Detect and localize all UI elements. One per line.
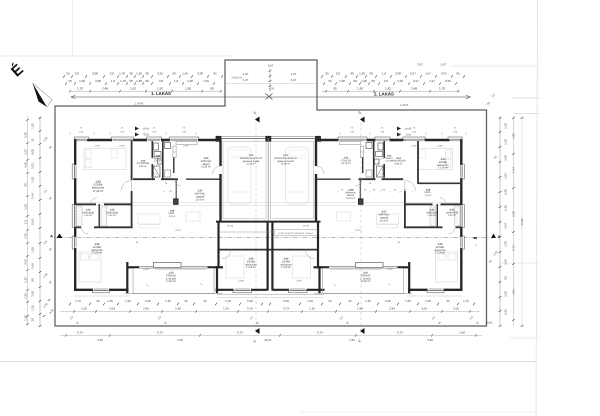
svg-text:2,39: 2,39 [504,123,508,129]
svg-text:1,97: 1,97 [440,63,446,67]
svg-text:4,25: 4,25 [269,88,275,91]
svg-text:17,29 m²: 17,29 m² [93,190,104,193]
svg-text:2,0: 2,0 [75,72,80,76]
svg-text:4,2 m²: 4,2 m² [169,215,176,218]
svg-text:1,9: 1,9 [111,79,116,83]
svg-text:17,29 m²: 17,29 m² [435,252,445,255]
svg-text:p=90: p=90 [120,145,126,148]
svg-text:30: 30 [184,299,188,303]
svg-text:FÜRDŐ: FÜRDŐ [154,157,162,160]
svg-text:5,73: 5,73 [397,331,403,335]
svg-text:1,97: 1,97 [243,78,249,82]
svg-text:4,60: 4,60 [504,155,508,161]
svg-text:1,98: 1,98 [79,79,85,83]
svg-text:1,50: 1,50 [504,139,508,145]
svg-text:4,43: 4,43 [24,259,28,265]
svg-text:2,30: 2,30 [24,233,28,239]
svg-text:3,0: 3,0 [159,79,164,83]
svg-text:1,98: 1,98 [397,79,403,83]
svg-text:1,90: 1,90 [357,86,363,90]
svg-text:2. LAKÁS: 2. LAKÁS [374,91,394,96]
svg-text:95: 95 [213,72,217,76]
svg-text:1.08: 1.08 [170,210,175,213]
svg-text:17,29 m²: 17,29 m² [92,252,102,255]
svg-text:1,82: 1,82 [157,86,163,90]
svg-text:1,20: 1,20 [136,79,142,83]
svg-text:13,75 m²: 13,75 m² [341,162,351,165]
svg-text:p=40: p=40 [388,268,394,271]
svg-text:1,50: 1,50 [504,189,508,195]
svg-text:1,98: 1,98 [175,307,181,311]
svg-text:2,97: 2,97 [417,63,423,67]
svg-text:2,96: 2,96 [143,307,149,311]
svg-text:1,03: 1,03 [24,149,28,155]
svg-text:KÖZL.: KÖZL. [169,212,176,215]
svg-text:1,70: 1,70 [77,86,83,90]
svg-text:1,20: 1,20 [359,72,365,76]
svg-text:2,97: 2,97 [243,72,249,76]
svg-text:1,97: 1,97 [429,79,435,83]
svg-text:20 02: 20 02 [175,229,181,232]
svg-text:2,48: 2,48 [102,86,108,90]
svg-text:FÜRDŐ: FÜRDŐ [385,157,393,160]
svg-text:1,92 m²: 1,92 m² [448,214,456,217]
svg-text:5,44: 5,44 [31,193,35,199]
svg-text:1,70: 1,70 [463,299,469,303]
svg-text:am 90: am 90 [303,225,310,228]
svg-text:1,98: 1,98 [339,79,345,83]
svg-text:1,70: 1,70 [439,86,445,90]
svg-text:1,90: 1,90 [185,86,191,90]
svg-text:1,78: 1,78 [119,72,125,76]
svg-text:1,35: 1,35 [107,299,113,303]
svg-text:2,97: 2,97 [291,78,297,82]
svg-text:2,96: 2,96 [145,299,151,303]
svg-text:2.08: 2.08 [426,189,431,192]
svg-text:1. LAKÁS: 1. LAKÁS [151,91,171,96]
svg-text:KÖZLEKEDŐ: KÖZLEKEDŐ [391,160,405,163]
svg-text:4,2 m²: 4,2 m² [425,194,432,197]
svg-text:11,28 m²: 11,28 m² [246,266,256,269]
svg-text:1,50: 1,50 [125,299,131,303]
svg-text:p=90: p=90 [412,145,418,148]
svg-text:1,45: 1,45 [203,79,209,83]
svg-text:4,70 m²: 4,70 m² [385,160,393,163]
svg-text:3,28: 3,28 [97,338,103,342]
svg-text:1,4045: 1,4045 [400,103,409,107]
svg-text:2,95: 2,95 [445,79,451,83]
svg-text:1,92 m²: 1,92 m² [108,214,116,217]
svg-text:4,60: 4,60 [24,162,28,168]
svg-text:90: 90 [504,276,508,280]
svg-text:13,61: 13,61 [31,218,35,226]
svg-text:2,97: 2,97 [441,72,447,76]
svg-text:56: 56 [68,79,72,83]
svg-text:25: 25 [31,138,35,142]
svg-text:5,73: 5,73 [237,331,243,335]
svg-text:1,98: 1,98 [357,307,363,311]
svg-text:24,41: 24,41 [486,320,493,324]
svg-text:6,20 m²: 6,20 m² [395,162,403,165]
svg-text:90: 90 [328,299,332,303]
svg-text:2,39: 2,39 [24,132,28,138]
svg-text:28,41: 28,41 [264,338,272,342]
svg-text:1,50: 1,50 [405,299,411,303]
svg-text:1,50: 1,50 [24,204,28,210]
svg-text:p=90: p=90 [95,145,101,148]
svg-text:5,73: 5,73 [157,331,163,335]
svg-text:2,0: 2,0 [110,72,115,76]
svg-text:KÖZL.: KÖZL. [425,191,432,194]
svg-text:30: 30 [446,299,450,303]
svg-text:1,48: 1,48 [225,299,231,303]
svg-text:2,96: 2,96 [24,293,28,299]
svg-text:2,30: 2,30 [504,205,508,211]
svg-text:1,48: 1,48 [307,299,313,303]
svg-text:90: 90 [24,183,28,187]
svg-text:1,35: 1,35 [165,299,171,303]
svg-text:1,82: 1,82 [385,86,391,90]
svg-text:1,97: 1,97 [291,72,297,76]
svg-text:24,0: 24,0 [268,64,274,68]
svg-text:2,95: 2,95 [157,72,163,76]
svg-text:2,97: 2,97 [413,79,419,83]
svg-text:4,70 m²: 4,70 m² [154,160,162,163]
svg-text:20 02: 20 02 [355,229,361,232]
svg-text:2,08: 2,08 [453,307,459,311]
svg-text:1,50: 1,50 [31,247,35,253]
svg-text:3,46: 3,46 [504,259,508,265]
svg-text:13,75 m²: 13,75 m² [346,197,356,200]
svg-text:90: 90 [369,72,373,76]
svg-text:1,50: 1,50 [349,338,355,342]
svg-text:±0,00: ±0,00 [405,128,412,131]
svg-text:5,98: 5,98 [283,299,289,303]
svg-text:1,9: 1,9 [24,220,28,224]
svg-text:B²: B² [359,340,362,343]
svg-text:2,0: 2,0 [336,72,341,76]
svg-text:15,50 m²: 15,50 m² [246,163,256,166]
svg-text:90: 90 [203,299,207,303]
svg-text:2,08: 2,08 [81,307,87,311]
svg-text:±0,00: ±0,00 [143,128,150,131]
svg-text:95: 95 [456,72,460,76]
svg-text:2,96: 2,96 [389,307,395,311]
svg-text:-0,02: -0,02 [405,134,411,137]
svg-text:90: 90 [31,278,35,282]
svg-text:p=90: p=90 [438,145,444,148]
svg-text:12,50 m²: 12,50 m² [361,280,371,283]
svg-text:5,98: 5,98 [247,299,253,303]
svg-text:3,08: 3,08 [421,307,427,311]
svg-text:2,96: 2,96 [504,309,508,315]
svg-text:4,43: 4,43 [504,223,508,229]
svg-text:90: 90 [129,79,133,83]
svg-text:95: 95 [333,86,337,90]
svg-text:p=90: p=90 [297,280,303,283]
svg-text:2,98: 2,98 [197,72,203,76]
svg-text:5,70: 5,70 [77,331,83,335]
svg-text:1,03: 1,03 [31,163,35,169]
svg-text:1,4045: 1,4045 [135,101,144,105]
svg-text:1,50: 1,50 [31,177,35,183]
svg-text:30: 30 [348,299,352,303]
svg-text:HOMLOK: HOMLOK [232,77,243,80]
svg-text:-0,02: -0,02 [143,134,149,137]
svg-text:95: 95 [210,86,214,90]
svg-text:12,50 m²: 12,50 m² [166,280,176,283]
svg-text:1,30: 1,30 [223,307,229,311]
svg-text:5,70: 5,70 [317,331,323,335]
svg-text:1,35: 1,35 [425,299,431,303]
svg-text:3,46: 3,46 [31,263,35,269]
svg-text:30: 30 [31,318,35,322]
svg-text:1,50 m²: 1,50 m² [428,214,436,217]
svg-text:90: 90 [353,79,357,83]
svg-text:5,73: 5,73 [283,307,289,311]
svg-text:3,08: 3,08 [109,307,115,311]
svg-text:25,4 m²: 25,4 m² [196,199,205,202]
svg-text:1,70: 1,70 [75,299,81,303]
svg-text:1,50: 1,50 [504,241,508,247]
svg-text:2,98: 2,98 [395,72,401,76]
svg-text:B¹: B¹ [254,340,257,343]
svg-text:25,4 m²: 25,4 m² [380,220,389,223]
svg-text:17,29 m²: 17,29 m² [438,167,448,170]
svg-text:1,45: 1,45 [182,72,188,76]
svg-text:25: 25 [325,72,329,76]
svg-text:p=90: p=90 [184,145,190,148]
svg-text:25: 25 [66,72,70,76]
svg-text:3,28: 3,28 [427,338,433,342]
svg-text:2,97: 2,97 [410,72,416,76]
svg-text:1,98: 1,98 [187,79,193,83]
svg-text:1,78: 1,78 [120,79,126,83]
svg-text:3,98: 3,98 [92,72,98,76]
svg-text:1,35: 1,35 [365,299,371,303]
svg-text:1,03: 1,03 [504,173,508,179]
svg-text:90: 90 [145,79,149,83]
svg-text:1,02: 1,02 [130,86,136,90]
svg-text:B¹: B¹ [254,111,257,114]
svg-text:ELŐSZOBA: ELŐSZOBA [137,162,150,165]
svg-text:4,00: 4,00 [31,149,35,155]
svg-text:90: 90 [129,72,133,76]
svg-text:1,50 m²: 1,50 m² [84,214,92,217]
svg-text:3,28: 3,28 [504,291,508,297]
svg-text:90: 90 [350,72,354,76]
svg-text:15,50 m²: 15,50 m² [281,163,291,166]
svg-text:p=40: p=40 [144,268,150,271]
svg-text:11,28 m²: 11,28 m² [281,266,291,269]
svg-text:90: 90 [371,79,375,83]
svg-text:p=90: p=90 [239,280,245,283]
svg-text:1,9: 1,9 [382,72,387,76]
svg-text:ELŐTETŐ ELŐTTI GERINCÉL VONALA: ELŐTETŐ ELŐTTI GERINCÉL VONALA [279,232,314,235]
svg-text:2.04: 2.04 [396,157,401,160]
svg-text:1,97: 1,97 [425,72,431,76]
svg-text:1,35: 1,35 [31,305,35,311]
svg-text:90: 90 [145,72,149,76]
svg-text:A: A [50,234,53,239]
svg-text:1,35: 1,35 [24,315,28,321]
svg-text:3,98: 3,98 [95,79,101,83]
svg-text:14,35 m²: 14,35 m² [201,166,211,169]
svg-text:B²: B² [359,111,362,114]
svg-text:1,50: 1,50 [177,338,183,342]
svg-text:1,35: 1,35 [24,277,28,283]
svg-text:1,20: 1,20 [136,72,142,76]
svg-text:30: 30 [96,299,100,303]
svg-text:am 90: am 90 [227,225,234,228]
svg-text:1.02: 1.02 [141,160,146,163]
svg-text:2,96: 2,96 [385,299,391,303]
svg-text:5,20 m²: 5,20 m² [139,165,147,168]
svg-text:1,20: 1,20 [361,79,367,83]
svg-text:1,25: 1,25 [31,123,35,129]
svg-text:1,2: 1,2 [174,79,179,83]
svg-text:1,30: 1,30 [309,307,315,311]
svg-text:3,28: 3,28 [31,291,35,297]
svg-text:56: 56 [328,79,332,83]
svg-text:2,48: 2,48 [411,86,417,90]
svg-text:2,0: 2,0 [384,79,389,83]
svg-text:1,98: 1,98 [459,331,465,335]
svg-text:90: 90 [172,72,176,76]
svg-text:5,70: 5,70 [247,307,253,311]
